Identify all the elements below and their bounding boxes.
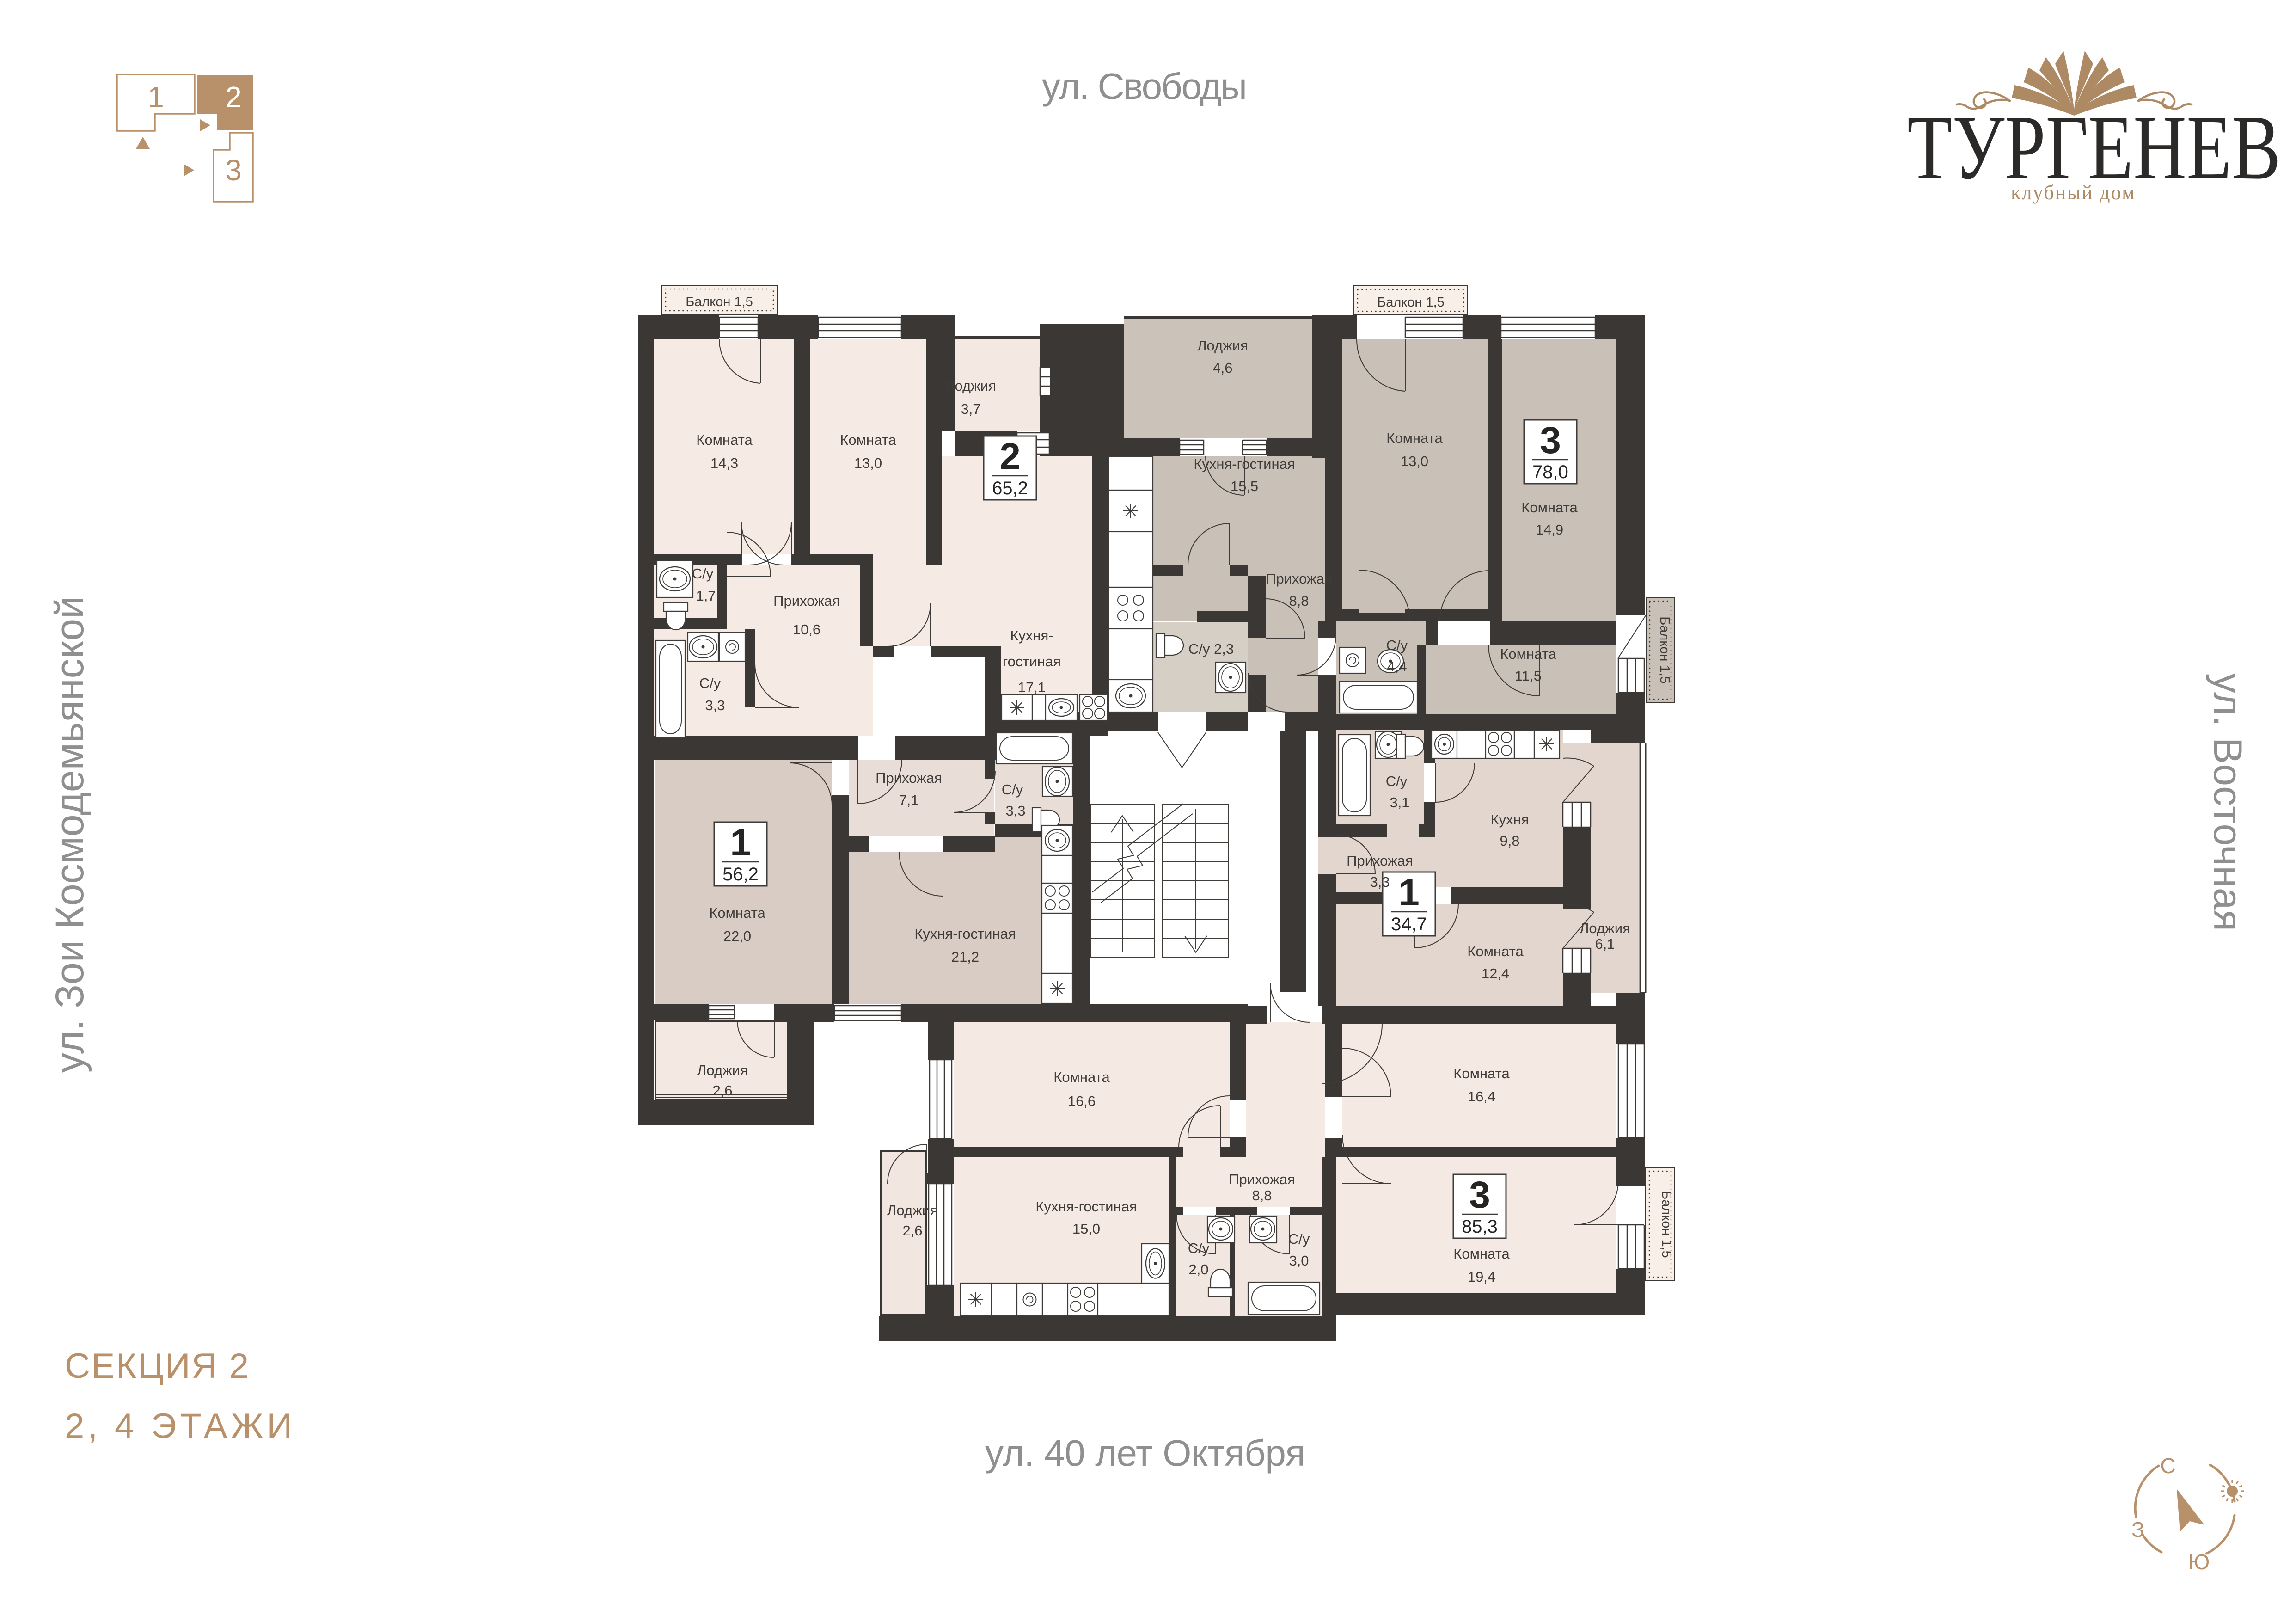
svg-text:3,1: 3,1 — [1390, 794, 1409, 811]
svg-text:2,6: 2,6 — [712, 1082, 732, 1099]
svg-text:12,4: 12,4 — [1482, 965, 1509, 982]
svg-text:ул. Зои Космодемьянской: ул. Зои Космодемьянской — [48, 596, 92, 1073]
svg-text:гостиная: гостиная — [1003, 653, 1061, 670]
svg-text:56,2: 56,2 — [722, 864, 759, 885]
svg-text:3,7: 3,7 — [961, 401, 980, 417]
svg-text:Кухня: Кухня — [1491, 811, 1529, 828]
svg-text:ул. Свободы: ул. Свободы — [1042, 66, 1247, 107]
svg-text:Прихожая: Прихожая — [1229, 1171, 1295, 1187]
svg-text:Балкон 1,5: Балкон 1,5 — [1659, 1191, 1674, 1258]
svg-text:4,6: 4,6 — [1212, 360, 1232, 376]
svg-text:Лоджия: Лоджия — [945, 378, 996, 394]
svg-text:10,6: 10,6 — [793, 621, 820, 638]
svg-text:Ю: Ю — [2188, 1550, 2210, 1574]
svg-text:3,3: 3,3 — [1005, 803, 1025, 819]
svg-text:6,1: 6,1 — [1595, 936, 1615, 952]
svg-text:С/у: С/у — [692, 565, 714, 582]
svg-text:3,0: 3,0 — [1289, 1253, 1309, 1269]
svg-text:2: 2 — [225, 80, 242, 114]
svg-text:Прихожая: Прихожая — [773, 593, 840, 609]
svg-text:13,0: 13,0 — [1401, 453, 1428, 469]
svg-text:Комната: Комната — [840, 432, 896, 448]
svg-text:7,1: 7,1 — [899, 792, 918, 808]
svg-text:2: 2 — [999, 436, 1021, 478]
svg-text:С/у 2,3: С/у 2,3 — [1188, 641, 1234, 657]
svg-text:3: 3 — [225, 154, 242, 187]
svg-text:85,3: 85,3 — [1462, 1216, 1498, 1237]
svg-text:ул. Восточная: ул. Восточная — [2205, 673, 2250, 931]
svg-text:Кухня-: Кухня- — [1010, 627, 1053, 644]
svg-text:Комната: Комната — [709, 905, 765, 921]
svg-text:1: 1 — [1398, 872, 1420, 914]
svg-text:С/у: С/у — [1188, 1240, 1210, 1256]
svg-text:С/у: С/у — [1002, 781, 1023, 798]
svg-text:1: 1 — [730, 822, 751, 864]
svg-text:14,9: 14,9 — [1536, 522, 1563, 538]
svg-text:С/у: С/у — [1386, 637, 1408, 653]
svg-text:1: 1 — [147, 80, 164, 114]
svg-text:16,6: 16,6 — [1068, 1093, 1096, 1109]
svg-text:3: 3 — [1540, 419, 1561, 461]
svg-text:Лоджия: Лоджия — [1197, 338, 1248, 354]
svg-text:Балкон 1,5: Балкон 1,5 — [1377, 295, 1445, 310]
svg-text:С/у: С/у — [699, 675, 721, 691]
svg-text:Комната: Комната — [1053, 1069, 1110, 1085]
svg-text:С/у: С/у — [1288, 1231, 1310, 1247]
svg-text:65,2: 65,2 — [992, 478, 1028, 498]
svg-text:Комната: Комната — [1386, 430, 1443, 446]
svg-text:З: З — [2131, 1518, 2144, 1542]
svg-text:11,5: 11,5 — [1515, 668, 1542, 684]
svg-text:Кухня-гостиная: Кухня-гостиная — [1035, 1198, 1137, 1215]
svg-text:4,4: 4,4 — [1387, 658, 1407, 675]
svg-text:ул. 40 лет Октября: ул. 40 лет Октября — [985, 1432, 1305, 1474]
svg-text:Прихожая: Прихожая — [1347, 853, 1413, 869]
svg-text:клубный дом: клубный дом — [2011, 181, 2135, 204]
svg-text:14,3: 14,3 — [710, 455, 738, 471]
svg-text:Прихожая: Прихожая — [1266, 571, 1332, 587]
svg-text:Кухня-гостиная: Кухня-гостиная — [1194, 456, 1295, 472]
svg-text:3,3: 3,3 — [1370, 874, 1390, 890]
svg-text:15,5: 15,5 — [1231, 478, 1258, 494]
svg-text:Комната: Комната — [696, 432, 753, 448]
svg-text:3: 3 — [1469, 1174, 1490, 1216]
svg-text:СЕКЦИЯ 2: СЕКЦИЯ 2 — [65, 1346, 249, 1386]
svg-text:Лоджия: Лоджия — [1580, 920, 1630, 936]
svg-text:1,7: 1,7 — [696, 588, 716, 604]
svg-text:13,0: 13,0 — [854, 455, 882, 471]
svg-text:8,8: 8,8 — [1252, 1187, 1272, 1204]
svg-text:17,1: 17,1 — [1018, 679, 1046, 695]
svg-text:С: С — [2160, 1454, 2175, 1478]
svg-text:2,6: 2,6 — [902, 1223, 922, 1239]
svg-text:15,0: 15,0 — [1072, 1221, 1100, 1237]
svg-text:9,8: 9,8 — [1500, 833, 1519, 849]
svg-text:34,7: 34,7 — [1391, 914, 1427, 934]
svg-text:Балкон 1,5: Балкон 1,5 — [686, 295, 753, 309]
svg-text:Комната: Комната — [1453, 1246, 1510, 1262]
svg-text:Балкон 1,5: Балкон 1,5 — [1657, 616, 1672, 684]
svg-text:Комната: Комната — [1500, 646, 1556, 662]
svg-text:3,3: 3,3 — [705, 697, 725, 713]
svg-text:16,4: 16,4 — [1468, 1088, 1495, 1105]
svg-text:19,4: 19,4 — [1468, 1269, 1495, 1285]
svg-text:21,2: 21,2 — [951, 949, 979, 965]
svg-text:Кухня-гостиная: Кухня-гостиная — [914, 926, 1016, 942]
svg-text:Комната: Комната — [1467, 943, 1524, 959]
svg-text:22,0: 22,0 — [723, 928, 751, 944]
svg-text:Лоджия: Лоджия — [697, 1062, 748, 1078]
svg-text:Лоджия: Лоджия — [887, 1202, 938, 1218]
svg-text:Комната: Комната — [1521, 499, 1578, 516]
svg-text:78,0: 78,0 — [1532, 462, 1568, 482]
svg-text:Комната: Комната — [1453, 1065, 1510, 1081]
svg-text:С/у: С/у — [1386, 773, 1408, 789]
svg-text:2,0: 2,0 — [1188, 1261, 1208, 1278]
svg-text:Прихожая: Прихожая — [876, 770, 942, 786]
svg-text:8,8: 8,8 — [1289, 593, 1309, 609]
